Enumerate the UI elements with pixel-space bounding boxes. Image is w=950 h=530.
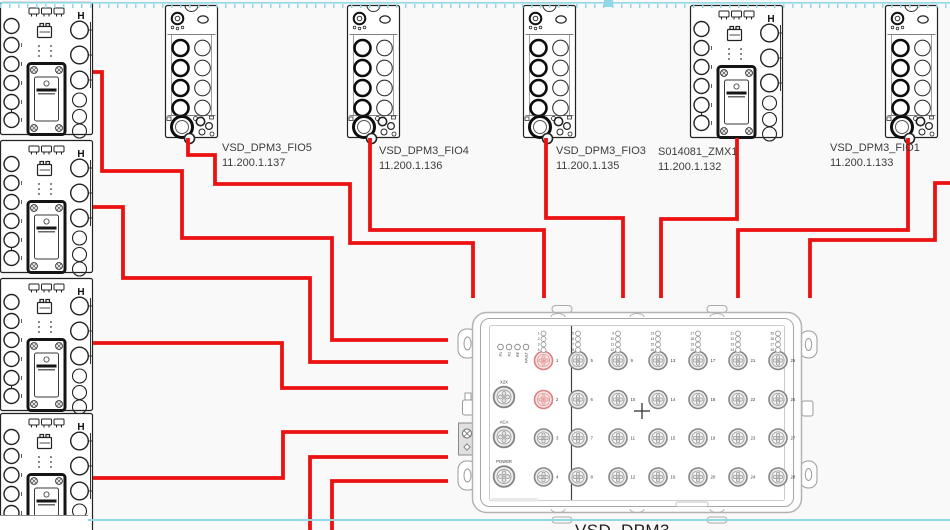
- port-number-label: 14: [671, 397, 676, 402]
- status-led-label: RE: [516, 351, 520, 357]
- port-number-label: 23: [730, 343, 734, 347]
- selection-marquee-bottom-edge: [88, 519, 950, 521]
- device-name: VSD_DPM3_FIO3: [556, 144, 646, 159]
- status-led: [515, 344, 521, 350]
- port[interactable]: [649, 352, 667, 370]
- port[interactable]: [769, 468, 787, 486]
- port-number-label: 22: [751, 397, 756, 402]
- port-number-label: 16: [650, 348, 654, 352]
- port-number-label: 28: [791, 475, 796, 480]
- port-number-label: POWER: [496, 459, 512, 464]
- port[interactable]: [769, 429, 787, 447]
- port-number-label: 14: [650, 337, 654, 341]
- port-number-label: 9: [612, 332, 614, 336]
- port-number-label: 7: [572, 343, 574, 347]
- port-led: [656, 337, 661, 342]
- port-number-label: 13: [650, 332, 654, 336]
- port-led: [656, 331, 661, 336]
- port-number-label: 1: [538, 332, 540, 336]
- right-mounting-bracket: [800, 331, 817, 488]
- status-led-label: P1: [499, 352, 503, 356]
- left-io-module-4[interactable]: [1, 414, 93, 530]
- port-number-label: 15: [671, 436, 676, 441]
- port[interactable]: [569, 429, 587, 447]
- device-ip: 11.200.1.133: [830, 156, 920, 171]
- port-number-label: 18: [711, 397, 716, 402]
- port-led: [696, 331, 701, 336]
- device-label-fio1[interactable]: VSD_DPM3_FIO111.200.1.133: [830, 141, 920, 170]
- port-number-label: 19: [711, 436, 716, 441]
- port-number-label: 19: [690, 343, 694, 347]
- port[interactable]: [649, 429, 667, 447]
- port[interactable]: [569, 468, 587, 486]
- port[interactable]: [609, 352, 627, 370]
- port-led: [616, 337, 621, 342]
- port-led: [696, 348, 701, 353]
- status-led-label: FAULT: [524, 351, 528, 363]
- port-led: [696, 342, 701, 347]
- port-number-label: 17: [690, 332, 694, 336]
- port[interactable]: [729, 468, 747, 486]
- port-led: [656, 342, 661, 347]
- port[interactable]: [769, 352, 787, 370]
- status-led: [506, 344, 512, 350]
- port[interactable]: [689, 391, 707, 409]
- port-led: [576, 348, 581, 353]
- topology-diagram: H: [0, 0, 950, 530]
- port-number-label: 28: [770, 348, 774, 352]
- port-number-label: 21: [730, 332, 734, 336]
- device-label-fio5[interactable]: VSD_DPM3_FIO511.200.1.137: [222, 141, 312, 170]
- port-number-label: 27: [770, 343, 774, 347]
- port-led: [736, 337, 741, 342]
- status-led-label: P2: [507, 352, 511, 356]
- device-label-fio4[interactable]: VSD_DPM3_FIO411.200.1.136: [379, 144, 469, 173]
- port-led: [776, 331, 781, 336]
- frame-corner-box: [0, 515, 88, 530]
- port-number-label: 12: [610, 348, 614, 352]
- port[interactable]: [729, 429, 747, 447]
- main-device[interactable]: 1122334455667788991010111112121313141415…: [458, 306, 817, 524]
- port[interactable]: [729, 391, 747, 409]
- port[interactable]: [689, 468, 707, 486]
- port[interactable]: [569, 352, 587, 370]
- device-ip: 11.200.1.135: [556, 159, 646, 174]
- port-number-label: ACA: [500, 420, 509, 425]
- port-led: [576, 337, 581, 342]
- port-number-label: 24: [730, 348, 734, 352]
- status-led: [523, 344, 529, 350]
- port-led: [776, 342, 781, 347]
- port-highlighted[interactable]: [535, 352, 553, 370]
- port-highlighted[interactable]: [535, 391, 553, 409]
- port[interactable]: [609, 429, 627, 447]
- port-number-label: 4: [538, 348, 540, 352]
- port-number-label: 26: [770, 337, 774, 341]
- port-number-label: 20: [711, 475, 716, 480]
- wire-right-edge-to-main[interactable]: [810, 183, 950, 298]
- selection-handle[interactable]: [604, 0, 613, 7]
- port[interactable]: [609, 391, 627, 409]
- port-led: [541, 331, 546, 336]
- port-number-label: 12: [631, 475, 636, 480]
- port-led: [776, 348, 781, 353]
- port-number-label: 21: [751, 358, 756, 363]
- port-number-label: 20: [690, 348, 694, 352]
- left-io-module-3[interactable]: [1, 279, 93, 415]
- port-number-label: 2: [538, 337, 540, 341]
- port-number-label: 27: [791, 436, 796, 441]
- port-led: [736, 342, 741, 347]
- port[interactable]: [689, 429, 707, 447]
- port-number-label: 10: [610, 337, 614, 341]
- port-led: [656, 348, 661, 353]
- port-number-label: X2X: [500, 380, 508, 385]
- port[interactable]: [609, 468, 627, 486]
- module-fio3[interactable]: [524, 6, 576, 144]
- port-led: [576, 331, 581, 336]
- port-number-label: 25: [770, 332, 774, 336]
- wire-bottom2-to-main[interactable]: [332, 481, 448, 530]
- module-fio4[interactable]: [348, 6, 400, 144]
- port[interactable]: [689, 352, 707, 370]
- port-number-label: 10: [631, 397, 636, 402]
- port-number-label: 11: [611, 343, 615, 347]
- port-led: [696, 337, 701, 342]
- port-led: [776, 337, 781, 342]
- device-label-zmx1[interactable]: S014081_ZMX111.200.1.132: [658, 145, 738, 174]
- port[interactable]: [535, 468, 553, 486]
- main-device-label[interactable]: VSD_DPM3: [575, 521, 670, 530]
- device-label-fio3[interactable]: VSD_DPM3_FIO311.200.1.135: [556, 144, 646, 173]
- port-number-label: 23: [751, 436, 756, 441]
- port-number-label: 17: [711, 358, 716, 363]
- port-number-label: 24: [751, 475, 756, 480]
- port-number-label: 8: [572, 348, 574, 352]
- port-number-label: 6: [572, 337, 574, 341]
- port-number-label: 15: [650, 343, 654, 347]
- port-number-label: 5: [572, 332, 574, 336]
- port-number-label: 26: [791, 397, 796, 402]
- port[interactable]: [649, 468, 667, 486]
- left-io-module-1[interactable]: [1, 3, 93, 139]
- device-ip: 11.200.1.132: [658, 160, 738, 175]
- device-name: VSD_DPM3_FIO1: [830, 141, 920, 156]
- port-led: [541, 337, 546, 342]
- port-led: [736, 331, 741, 336]
- port-led: [736, 348, 741, 353]
- device-ip: 11.200.1.137: [222, 156, 312, 171]
- port[interactable]: [494, 427, 515, 448]
- port-number-label: 22: [730, 337, 734, 341]
- port-number-label: 3: [538, 343, 540, 347]
- port-number-label: 18: [690, 337, 694, 341]
- port[interactable]: [769, 391, 787, 409]
- left-io-module-2[interactable]: [1, 141, 93, 277]
- port-number-label: 25: [791, 358, 796, 363]
- port-led: [541, 342, 546, 347]
- module-zmx1[interactable]: [691, 6, 783, 142]
- device-ip: 11.200.1.136: [379, 159, 469, 174]
- port-led: [616, 348, 621, 353]
- diagram-canvas: H: [0, 0, 950, 530]
- port[interactable]: [569, 391, 587, 409]
- port[interactable]: [494, 387, 515, 408]
- device-name: S014081_ZMX1: [658, 145, 738, 160]
- module-fio5[interactable]: [166, 6, 218, 144]
- port-number-label: 13: [671, 358, 676, 363]
- port[interactable]: [649, 391, 667, 409]
- device-name: VSD_DPM3_FIO4: [379, 144, 469, 159]
- status-led: [498, 344, 504, 350]
- port-led: [541, 348, 546, 353]
- wire-left4-to-main[interactable]: [93, 432, 448, 478]
- port[interactable]: [729, 352, 747, 370]
- module-fio1[interactable]: [886, 6, 938, 144]
- port[interactable]: [494, 466, 515, 487]
- port-number-label: 16: [671, 475, 676, 480]
- port-led: [576, 342, 581, 347]
- port-led: [616, 331, 621, 336]
- device-name: VSD_DPM3_FIO5: [222, 141, 312, 156]
- wire-left3-to-main[interactable]: [93, 343, 448, 388]
- port[interactable]: [535, 429, 553, 447]
- port-number-label: 11: [631, 436, 636, 441]
- port-led: [616, 342, 621, 347]
